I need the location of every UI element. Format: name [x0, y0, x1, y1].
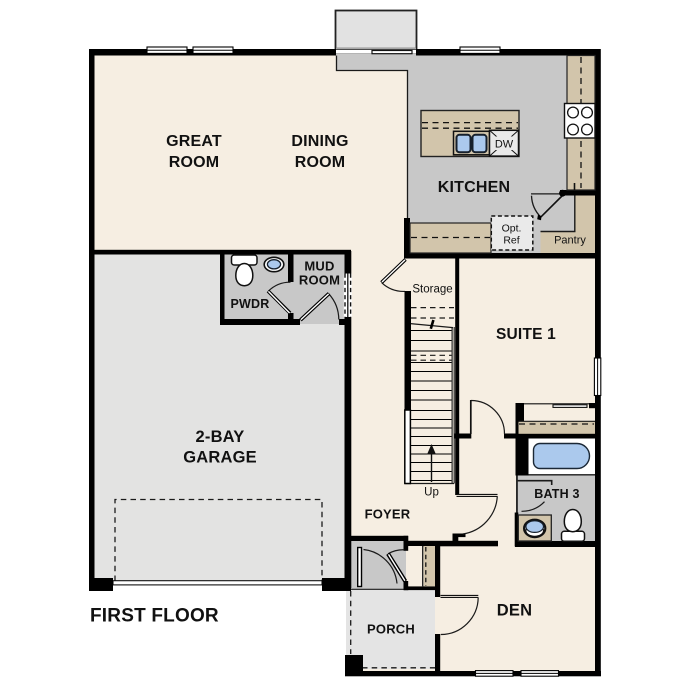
- svg-text:FOYER: FOYER: [365, 507, 411, 522]
- svg-text:BATH 3: BATH 3: [534, 487, 579, 501]
- svg-text:2-BAY: 2-BAY: [196, 428, 245, 446]
- svg-text:DEN: DEN: [497, 602, 532, 620]
- svg-text:MUD: MUD: [304, 259, 334, 274]
- svg-text:PORCH: PORCH: [367, 622, 415, 637]
- svg-text:ROOM: ROOM: [295, 154, 346, 171]
- svg-text:ROOM: ROOM: [169, 154, 220, 171]
- svg-text:DINING: DINING: [291, 133, 348, 150]
- svg-text:Ref: Ref: [503, 235, 519, 247]
- svg-text:SUITE 1: SUITE 1: [496, 326, 556, 343]
- svg-text:Up: Up: [424, 487, 439, 499]
- svg-text:KITCHEN: KITCHEN: [438, 179, 511, 196]
- svg-text:ROOM: ROOM: [299, 273, 340, 288]
- svg-text:Pantry: Pantry: [554, 235, 586, 247]
- svg-text:Opt.: Opt.: [502, 223, 522, 235]
- svg-text:DW: DW: [495, 139, 514, 151]
- svg-text:PWDR: PWDR: [231, 297, 270, 311]
- svg-text:GREAT: GREAT: [166, 133, 222, 150]
- svg-text:GARAGE: GARAGE: [183, 449, 257, 467]
- svg-text:Storage: Storage: [412, 284, 452, 296]
- svg-text:FIRST FLOOR: FIRST FLOOR: [90, 606, 219, 627]
